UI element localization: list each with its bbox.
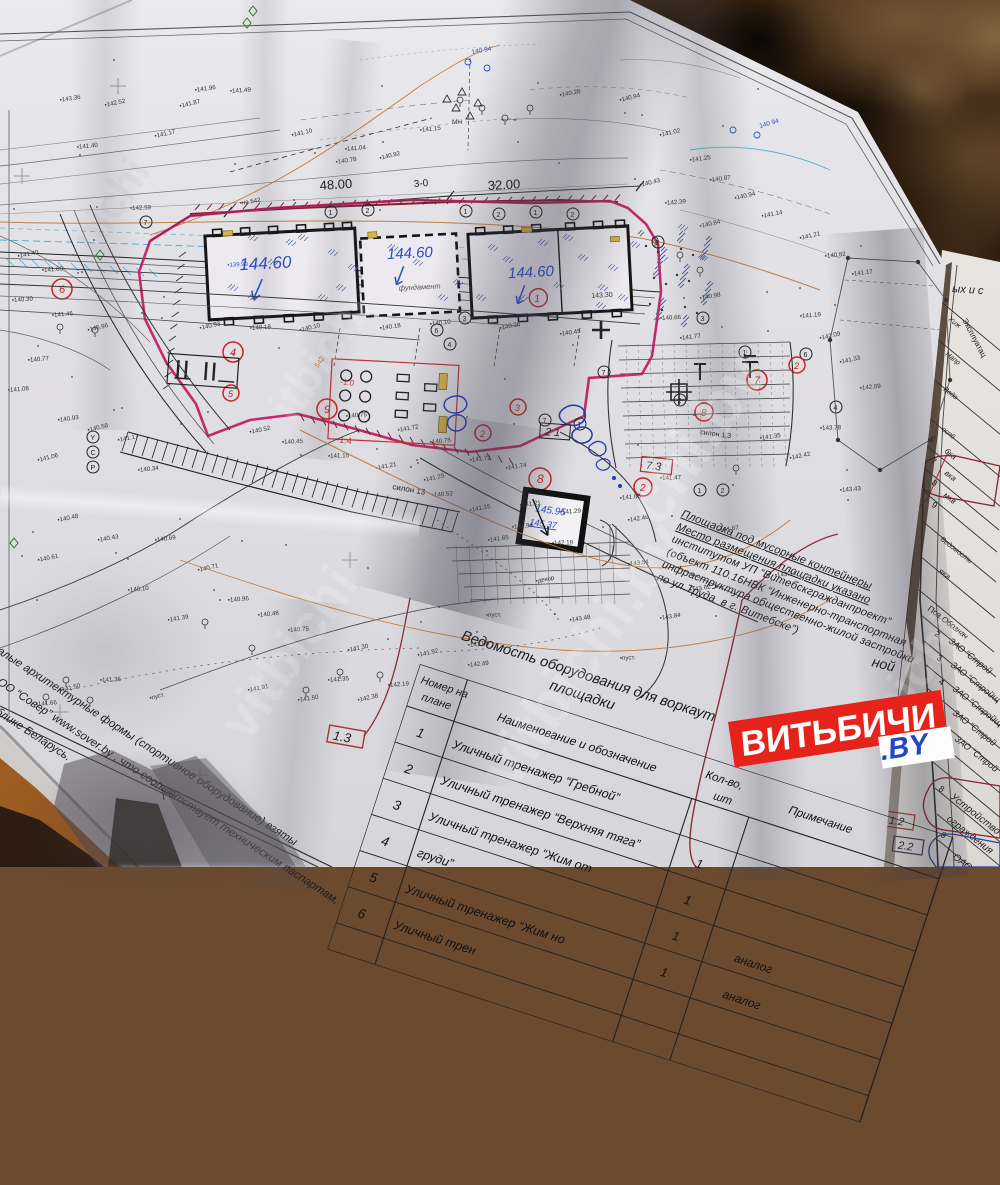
svg-text:1: 1 (659, 965, 670, 980)
svg-text:аналог: аналог (721, 987, 763, 1012)
svg-text:1: 1 (682, 893, 693, 908)
svg-text:1: 1 (670, 929, 681, 944)
svg-text:аналог: аналог (733, 951, 775, 976)
